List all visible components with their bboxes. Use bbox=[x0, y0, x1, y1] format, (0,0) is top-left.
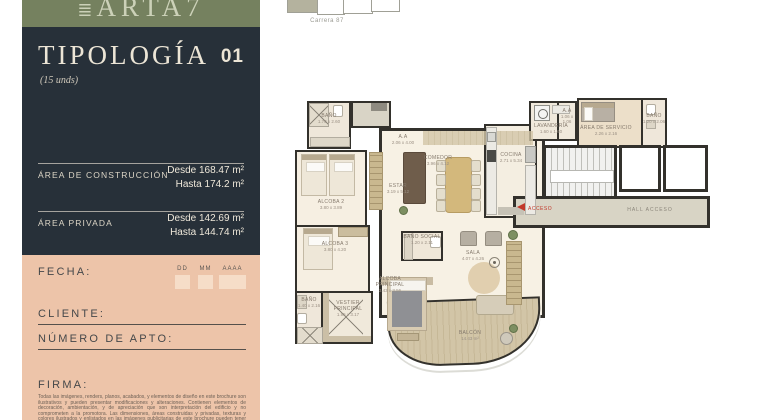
plant bbox=[399, 206, 408, 215]
chair bbox=[436, 188, 446, 200]
closet-rail bbox=[323, 293, 329, 341]
entry-floor bbox=[423, 131, 533, 145]
washer bbox=[534, 105, 550, 121]
stove bbox=[487, 150, 496, 162]
chair bbox=[471, 200, 481, 212]
vanity bbox=[310, 137, 350, 147]
nightstand bbox=[381, 277, 387, 285]
nightstand bbox=[427, 277, 433, 285]
sofa-estar bbox=[403, 152, 426, 204]
bed-twin-1 bbox=[301, 154, 327, 196]
sink bbox=[487, 132, 496, 142]
floor-lamp bbox=[489, 257, 500, 268]
toilet bbox=[646, 104, 656, 115]
chair bbox=[436, 160, 446, 172]
chair bbox=[471, 174, 481, 186]
chair bbox=[436, 174, 446, 186]
sink bbox=[404, 234, 413, 260]
bed-twin-2 bbox=[329, 154, 355, 196]
bench bbox=[397, 333, 419, 341]
elevator-2 bbox=[663, 145, 708, 192]
closet-rail bbox=[323, 336, 371, 342]
fridge bbox=[525, 146, 536, 163]
access-arrow-icon bbox=[517, 203, 525, 211]
stair-landing bbox=[550, 170, 614, 183]
armchair bbox=[460, 231, 477, 246]
stairwell bbox=[543, 145, 617, 203]
hall-label: HALL ACCESO bbox=[615, 207, 685, 213]
tv-closet bbox=[369, 152, 383, 210]
dining-table bbox=[445, 157, 472, 213]
sink bbox=[646, 120, 656, 129]
plant bbox=[509, 324, 518, 333]
chair bbox=[436, 200, 446, 212]
brochure-page: ≣ARTA7 TIPOLOGÍA 01 (15 unds) ÁREA DE CO… bbox=[0, 0, 760, 420]
toilet bbox=[333, 105, 343, 117]
plant bbox=[508, 230, 518, 240]
toilet bbox=[297, 313, 307, 324]
toilet bbox=[430, 236, 441, 248]
balcony-table bbox=[500, 332, 513, 345]
laundry-counter bbox=[552, 105, 570, 114]
floorplan: ACCESO HALL ACCESO BAÑO1.70 x 2.60 ALCOB… bbox=[0, 0, 760, 420]
sink bbox=[297, 295, 307, 309]
bed-alcoba-3 bbox=[303, 228, 333, 270]
access-label: ACCESO bbox=[528, 206, 552, 212]
vestier-area bbox=[329, 299, 363, 335]
armchair bbox=[485, 231, 502, 246]
desk bbox=[338, 227, 368, 237]
closet-shelf bbox=[371, 103, 387, 111]
chair bbox=[471, 188, 481, 200]
shelving bbox=[506, 241, 522, 305]
shower bbox=[297, 327, 323, 344]
elevator-1 bbox=[619, 145, 661, 192]
shower bbox=[309, 103, 329, 127]
bed-principal bbox=[387, 277, 427, 331]
chair bbox=[471, 160, 481, 172]
service-bed bbox=[581, 102, 615, 122]
